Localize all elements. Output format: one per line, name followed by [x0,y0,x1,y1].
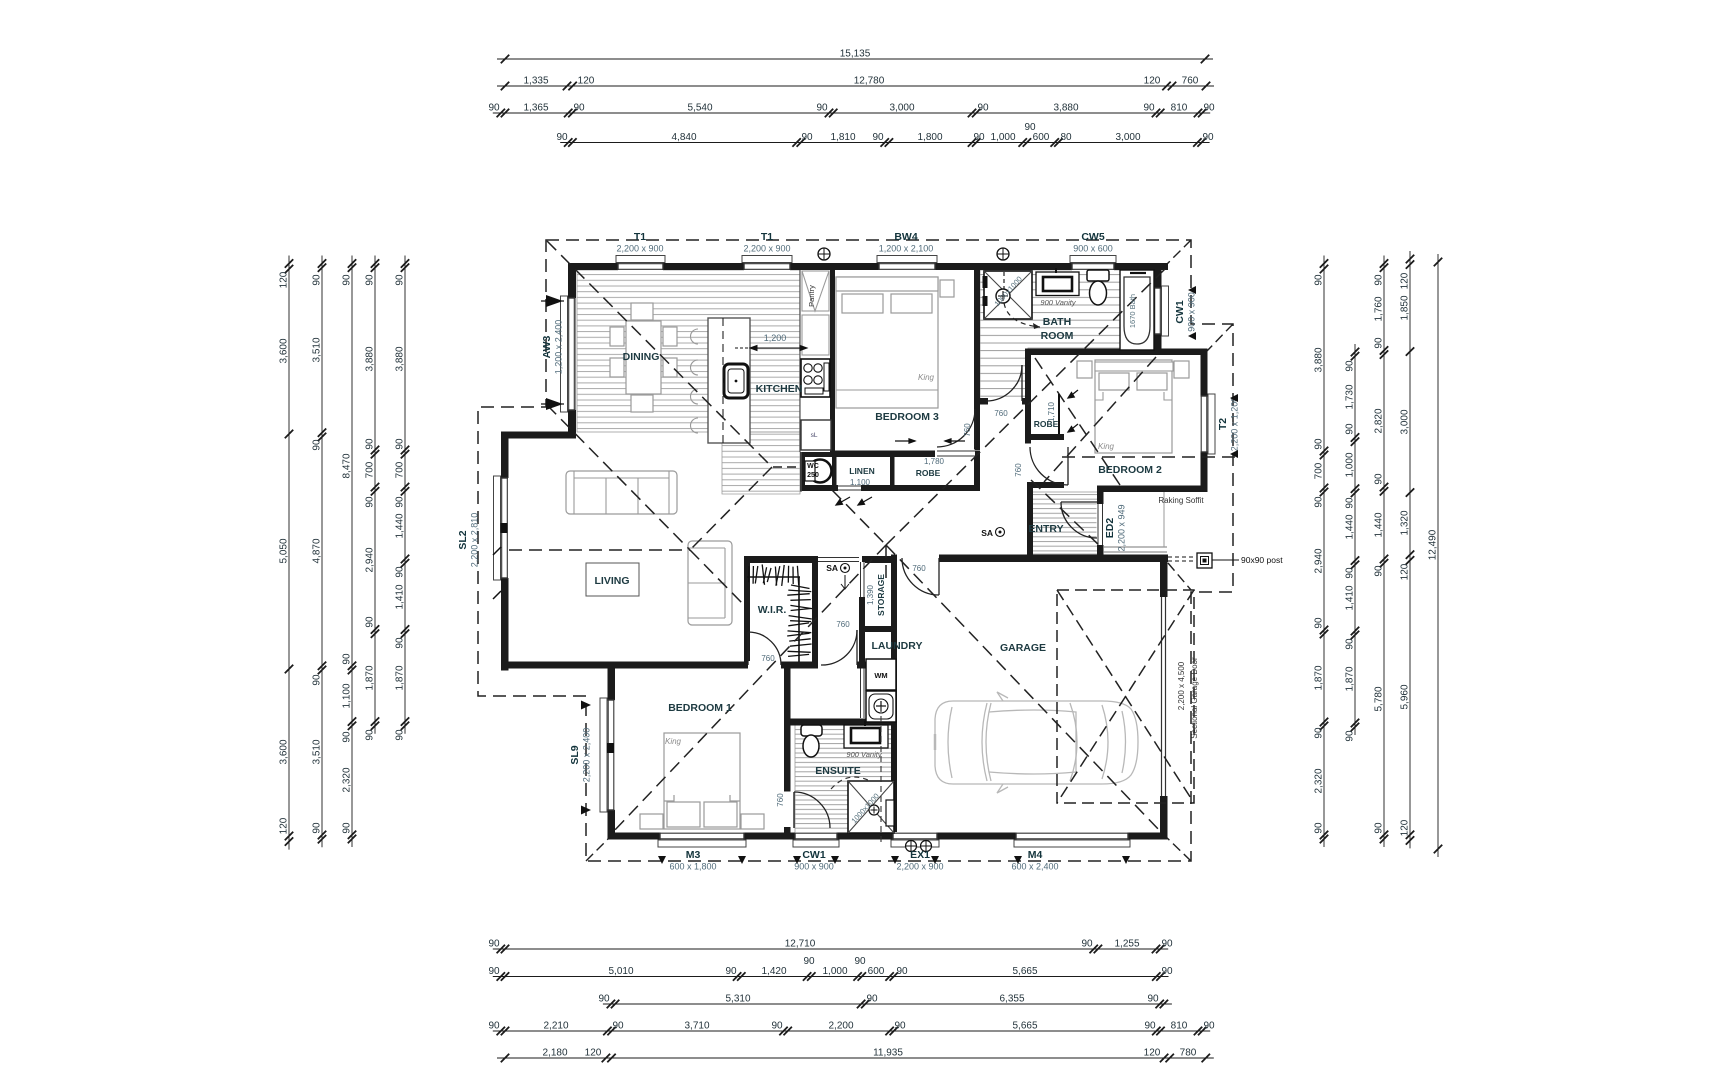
svg-text:1,320: 1,320 [1400,510,1411,535]
svg-text:ENTRY: ENTRY [1028,523,1063,535]
svg-text:3,880: 3,880 [365,346,376,371]
svg-text:3,000: 3,000 [889,103,914,114]
svg-text:600: 600 [1033,132,1050,143]
svg-text:SL9: SL9 [569,745,581,764]
svg-text:760: 760 [994,409,1008,418]
svg-text:1,255: 1,255 [1114,939,1139,950]
svg-text:1,335: 1,335 [523,76,548,87]
svg-text:BEDROOM 1: BEDROOM 1 [668,702,732,714]
svg-text:3,710: 3,710 [684,1021,709,1032]
svg-text:3,000: 3,000 [1400,409,1411,434]
svg-text:90: 90 [1345,497,1356,509]
svg-text:90: 90 [1314,617,1325,629]
svg-text:900 Vanity: 900 Vanity [846,750,882,759]
svg-text:780: 780 [1180,1048,1197,1059]
svg-text:5,665: 5,665 [1012,966,1037,977]
svg-text:5,665: 5,665 [1012,1021,1037,1032]
svg-text:120: 120 [279,817,290,834]
svg-text:90: 90 [803,956,815,967]
svg-text:1,365: 1,365 [523,103,548,114]
svg-text:120: 120 [1144,76,1161,87]
svg-text:1,760: 1,760 [1374,296,1385,321]
svg-text:760: 760 [1014,463,1023,477]
svg-text:4,840: 4,840 [671,132,696,143]
svg-text:SA: SA [981,528,993,538]
svg-text:90: 90 [342,274,353,286]
svg-text:15,135: 15,135 [840,49,871,60]
svg-text:90: 90 [312,274,323,286]
svg-text:700: 700 [1314,462,1325,479]
svg-text:1,780: 1,780 [924,457,945,466]
svg-text:1,800: 1,800 [917,132,942,143]
svg-text:90: 90 [612,1021,624,1032]
svg-text:CW5: CW5 [1081,231,1104,243]
svg-text:90: 90 [1314,727,1325,739]
svg-text:1,870: 1,870 [395,665,406,690]
svg-text:BEDROOM 3: BEDROOM 3 [875,411,939,423]
svg-text:1,420: 1,420 [761,966,786,977]
svg-text:90: 90 [365,729,376,741]
svg-text:90: 90 [801,132,813,143]
svg-text:SL2: SL2 [457,530,469,549]
svg-text:King: King [918,373,935,382]
svg-text:90: 90 [598,994,610,1005]
svg-text:90: 90 [1314,496,1325,508]
svg-text:6,355: 6,355 [999,994,1024,1005]
svg-text:1,870: 1,870 [1314,665,1325,690]
svg-text:600 x 1,800: 600 x 1,800 [669,862,716,872]
svg-text:120: 120 [1144,1048,1161,1059]
svg-text:90: 90 [1144,1021,1156,1032]
svg-text:1,000: 1,000 [990,132,1015,143]
svg-text:90: 90 [872,132,884,143]
svg-text:LAUNDRY: LAUNDRY [872,640,923,652]
svg-text:2,180: 2,180 [542,1048,567,1059]
svg-text:1,710: 1,710 [1047,401,1056,422]
svg-text:90: 90 [854,956,866,967]
svg-text:120: 120 [279,271,290,288]
svg-text:90: 90 [365,274,376,286]
svg-text:90: 90 [1161,939,1173,950]
svg-text:BW4: BW4 [894,231,917,243]
svg-text:1,440: 1,440 [395,513,406,538]
svg-text:1,200 x 2,100: 1,200 x 2,100 [879,244,934,254]
svg-text:1,870: 1,870 [1345,666,1356,691]
svg-text:700: 700 [365,461,376,478]
svg-text:90: 90 [816,103,828,114]
svg-text:GARAGE: GARAGE [1000,642,1046,654]
svg-text:90: 90 [395,637,406,649]
svg-text:90: 90 [395,274,406,286]
svg-text:2,200 x 2,400: 2,200 x 2,400 [582,728,592,783]
svg-text:1,100: 1,100 [850,478,871,487]
svg-text:5,780: 5,780 [1374,686,1385,711]
svg-text:EX1: EX1 [910,849,930,861]
svg-text:3,880: 3,880 [395,346,406,371]
svg-text:12,780: 12,780 [854,76,885,87]
svg-text:2,820: 2,820 [1374,408,1385,433]
svg-text:2,200 x 1,200: 2,200 x 1,200 [1230,397,1240,452]
svg-text:1,390: 1,390 [866,584,875,605]
svg-text:1,200: 1,200 [764,333,787,343]
svg-text:KITCHEN: KITCHEN [756,383,803,395]
svg-text:STORAGE: STORAGE [876,574,886,616]
svg-text:90: 90 [365,496,376,508]
svg-text:250: 250 [807,472,819,479]
svg-text:900 Vanity: 900 Vanity [1040,298,1076,307]
svg-text:CW1: CW1 [1174,300,1186,323]
svg-text:2,200 x 4,500: 2,200 x 4,500 [1177,661,1186,710]
svg-text:2,200 x 2,810: 2,200 x 2,810 [470,513,480,568]
svg-text:90: 90 [1345,360,1356,372]
svg-text:760: 760 [836,620,850,629]
svg-text:Sectional Garage Door: Sectional Garage Door [1190,657,1199,739]
svg-text:1,000: 1,000 [1345,452,1356,477]
svg-text:BATH: BATH [1043,316,1071,328]
svg-text:90: 90 [1314,438,1325,450]
svg-text:3,000: 3,000 [1115,132,1140,143]
svg-text:1,410: 1,410 [1345,585,1356,610]
svg-text:600: 600 [868,966,885,977]
svg-text:T1: T1 [634,231,646,243]
svg-text:90: 90 [1314,274,1325,286]
svg-text:90: 90 [977,103,989,114]
svg-text:1,870: 1,870 [365,665,376,690]
svg-text:90: 90 [1374,565,1385,577]
svg-text:90: 90 [342,822,353,834]
svg-text:600 x 2,400: 600 x 2,400 [1011,862,1058,872]
svg-text:90: 90 [1345,638,1356,650]
svg-text:90: 90 [1203,1021,1215,1032]
svg-text:90: 90 [1374,473,1385,485]
svg-text:5,010: 5,010 [608,966,633,977]
svg-text:2,320: 2,320 [1314,768,1325,793]
svg-text:ROOM: ROOM [1041,330,1074,342]
svg-text:BEDROOM 2: BEDROOM 2 [1098,464,1162,476]
svg-text:810: 810 [1171,1021,1188,1032]
svg-text:90: 90 [312,439,323,451]
svg-text:90: 90 [342,653,353,665]
svg-text:2,200 x 900: 2,200 x 900 [743,244,790,254]
svg-text:1,100: 1,100 [342,683,353,708]
svg-text:3,510: 3,510 [312,739,323,764]
svg-text:90: 90 [771,1021,783,1032]
svg-text:120: 120 [578,76,595,87]
svg-text:AW3: AW3 [541,335,553,358]
svg-text:90: 90 [395,496,406,508]
svg-text:1,850: 1,850 [1400,295,1411,320]
svg-text:700: 700 [395,461,406,478]
svg-text:90: 90 [395,566,406,578]
svg-text:2,200 x 949: 2,200 x 949 [1117,504,1127,551]
svg-text:90: 90 [894,1021,906,1032]
svg-text:SA: SA [826,563,838,573]
svg-text:3,600: 3,600 [279,739,290,764]
svg-text:2,200 x 900: 2,200 x 900 [616,244,663,254]
svg-text:90: 90 [1203,103,1215,114]
svg-text:12,710: 12,710 [785,939,816,950]
svg-text:1,000: 1,000 [822,966,847,977]
svg-text:3,880: 3,880 [1314,347,1325,372]
svg-text:90: 90 [1024,122,1036,133]
svg-text:90: 90 [1374,337,1385,349]
svg-text:11,935: 11,935 [873,1048,903,1059]
svg-text:1670 Bath: 1670 Bath [1128,294,1137,328]
svg-text:90: 90 [342,731,353,743]
svg-text:2,200: 2,200 [828,1021,853,1032]
svg-text:12,490: 12,490 [1428,529,1439,560]
svg-text:90: 90 [488,103,500,114]
svg-text:WC: WC [807,463,819,470]
svg-text:120: 120 [585,1048,602,1059]
svg-text:CW1: CW1 [802,849,825,861]
svg-text:900 x 900: 900 x 900 [1187,292,1197,332]
svg-text:90: 90 [1314,822,1325,834]
svg-text:90: 90 [1143,103,1155,114]
svg-text:5,050: 5,050 [279,538,290,563]
svg-text:90: 90 [1147,994,1159,1005]
svg-text:80: 80 [1060,132,1072,143]
svg-text:90: 90 [1202,132,1214,143]
svg-text:90: 90 [1345,730,1356,742]
svg-text:810: 810 [1171,103,1188,114]
svg-text:1,730: 1,730 [1345,384,1356,409]
svg-text:3,600: 3,600 [279,338,290,363]
svg-text:90: 90 [1081,939,1093,950]
svg-text:90: 90 [725,966,737,977]
svg-text:2,200 x 900: 2,200 x 900 [896,862,943,872]
svg-text:ED2: ED2 [1104,518,1116,539]
svg-text:120: 120 [1400,272,1411,289]
svg-text:WM: WM [874,671,887,680]
svg-text:DINING: DINING [623,351,660,363]
svg-text:90: 90 [556,132,568,143]
svg-text:90: 90 [488,966,500,977]
svg-text:W.I.R.: W.I.R. [758,604,787,616]
svg-text:LINEN: LINEN [849,466,875,476]
svg-text:760: 760 [963,423,972,437]
svg-text:90: 90 [1161,966,1173,977]
svg-text:King: King [1098,442,1115,451]
svg-text:T1: T1 [761,231,773,243]
svg-text:120: 120 [1400,563,1411,580]
svg-text:90: 90 [973,132,985,143]
svg-text:5,310: 5,310 [725,994,750,1005]
svg-text:90: 90 [1345,567,1356,579]
svg-text:90: 90 [365,438,376,450]
svg-text:3,880: 3,880 [1053,103,1078,114]
svg-text:900 x 600: 900 x 600 [1073,244,1113,254]
svg-text:90: 90 [1374,274,1385,286]
svg-text:90: 90 [395,438,406,450]
svg-text:90x90 post: 90x90 post [1241,555,1283,565]
svg-text:760: 760 [761,654,775,663]
svg-text:2,940: 2,940 [365,547,376,572]
svg-text:90: 90 [365,616,376,628]
svg-text:90: 90 [896,966,908,977]
svg-text:LIVING: LIVING [594,575,629,587]
svg-text:90: 90 [1374,822,1385,834]
svg-text:Raking Soffit: Raking Soffit [1158,496,1204,505]
svg-text:1,200 x 2,400: 1,200 x 2,400 [554,320,564,375]
svg-text:1,440: 1,440 [1345,514,1356,539]
svg-text:90: 90 [1345,423,1356,435]
svg-text:4,870: 4,870 [312,538,323,563]
svg-text:2,940: 2,940 [1314,548,1325,573]
svg-text:3,510: 3,510 [312,337,323,362]
svg-text:5,540: 5,540 [687,103,712,114]
svg-text:sL: sL [811,432,818,439]
svg-text:90: 90 [312,674,323,686]
svg-text:760: 760 [776,793,785,807]
svg-text:2,210: 2,210 [543,1021,568,1032]
svg-text:5,960: 5,960 [1400,684,1411,709]
svg-text:T2: T2 [1217,418,1229,430]
svg-text:8,470: 8,470 [342,453,353,478]
svg-text:1,410: 1,410 [395,584,406,609]
svg-text:King: King [665,737,682,746]
svg-text:ENSUITE: ENSUITE [815,765,861,777]
svg-text:120: 120 [1400,819,1411,836]
svg-text:760: 760 [1182,76,1199,87]
svg-text:90: 90 [488,939,500,950]
svg-text:760: 760 [912,564,926,573]
svg-text:M3: M3 [686,849,701,861]
svg-text:90: 90 [488,1021,500,1032]
svg-text:2,320: 2,320 [342,767,353,792]
svg-text:Pantry: Pantry [807,285,816,307]
svg-text:90: 90 [312,822,323,834]
svg-text:M4: M4 [1028,849,1043,861]
svg-text:ROBE: ROBE [916,468,941,478]
svg-text:900 x 900: 900 x 900 [794,862,834,872]
svg-text:1,810: 1,810 [830,132,855,143]
svg-text:90: 90 [395,729,406,741]
svg-text:1,440: 1,440 [1374,512,1385,537]
svg-text:90: 90 [866,994,878,1005]
svg-text:90: 90 [573,103,585,114]
